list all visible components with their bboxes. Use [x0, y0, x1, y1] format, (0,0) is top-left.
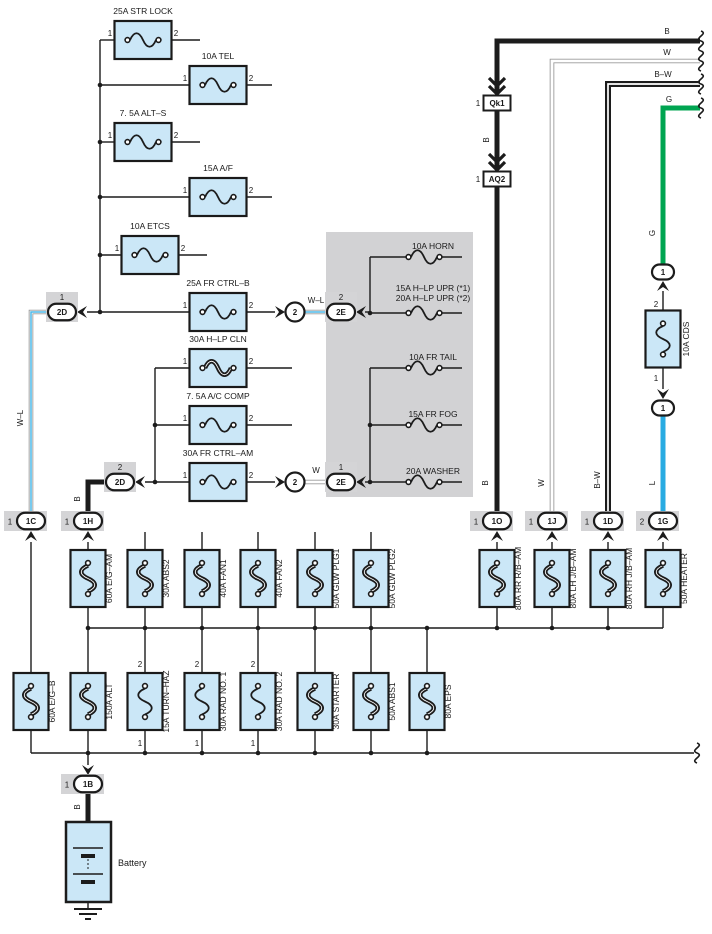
wire-color-label: W–L [308, 296, 325, 305]
pin-number: 1 [108, 29, 113, 38]
connector-2e-2: 22E [325, 292, 357, 322]
fuse-15a-turn-haz: 15A TURN–HAZ21 [128, 660, 172, 748]
connector-code: 2D [57, 308, 67, 317]
fuse-label: 20A H–LP UPR (*2) [396, 293, 471, 303]
fuse-25a-fr-ctrl-b: 25A FR CTRL–B12 [183, 278, 254, 331]
wire-break-icon [695, 743, 700, 763]
fuse-label: 50A GLW PLG1 [331, 548, 341, 608]
connector-code: 1H [83, 517, 93, 526]
junction-dot [256, 626, 261, 631]
fuse-label: 10A TEL [202, 51, 235, 61]
flow-arrow-icon [77, 306, 87, 318]
fuse-30a-rad-no-1: 30A RAD NO. 121 [185, 660, 229, 748]
connector-code: 1B [83, 780, 93, 789]
connector-code: 1 [661, 268, 666, 277]
fuse-40a-fan2: 40A FAN2 [241, 550, 285, 607]
flow-arrow-icon [82, 765, 94, 775]
fuse-10a-tel: 10A TEL12 [183, 51, 254, 104]
connector-1o: 11O [470, 511, 513, 531]
pin-number: 1 [476, 99, 481, 108]
pin-number: 1 [115, 244, 120, 253]
fuse-7-5a-alt-s: 7. 5A ALT–S12 [108, 108, 179, 161]
fuse-label: 150A ALT [104, 683, 114, 719]
pin-number: 1 [183, 301, 188, 310]
fuse-label: 30A RAD NO. 2 [274, 671, 284, 731]
fuse-label: 80A RR R/B–AM [513, 547, 523, 610]
wire-break-icon [699, 31, 704, 51]
pin-number: 1 [65, 781, 70, 790]
fuse-80a-rr-r-b-am: 80A RR R/B–AM [480, 547, 524, 610]
pin-number: 1 [65, 518, 70, 527]
fuse-label: 7. 5A A/C COMP [186, 391, 250, 401]
fuse-80a-lh-j-b-am: 80A LH J/B–AM [535, 548, 579, 608]
connector-1h: 11H [61, 511, 104, 531]
pin-number: 1 [8, 518, 13, 527]
fuse-label: 30A ABS2 [161, 559, 171, 598]
fuse-10a-cds: 10A CDS21 [646, 300, 692, 383]
fuse-label: 7. 5A ALT–S [120, 108, 167, 118]
wire-color-label: B–W [593, 471, 602, 489]
flow-arrow-icon [657, 281, 669, 291]
fuse-label: 60A E/G–AM [104, 554, 114, 603]
junction-dot [86, 626, 91, 631]
battery: Battery [66, 822, 147, 902]
pin-number: 2 [249, 414, 254, 423]
fuse-label: 80A RH J/B–AM [624, 548, 634, 609]
pin-number: 1 [529, 518, 534, 527]
connector-round-0: 2 [286, 303, 305, 322]
connector-code: Qk1 [489, 99, 505, 108]
fuse-label: 60A E/G–B [47, 680, 57, 722]
pin-number: 2 [138, 660, 143, 669]
fuse-label: 30A H–LP CLN [189, 334, 247, 344]
wire-break-icon [699, 98, 704, 118]
wire-color-label: B [482, 137, 491, 142]
connector-code: 2E [336, 478, 346, 487]
pin-number: 2 [249, 186, 254, 195]
flow-arrow-icon [491, 531, 503, 541]
junction-dot [153, 423, 158, 428]
ground-icon [74, 909, 102, 919]
connector-oval-0: 1 [652, 265, 674, 280]
wire-color-label: B [73, 804, 82, 809]
fuse-50a-abs1: 50A ABS1 [354, 673, 398, 730]
fuse-label: 10A CDS [681, 321, 691, 356]
junction-dot [550, 626, 555, 631]
fuse-15a-a-f: 15A A/F12 [183, 163, 254, 216]
flow-arrow-icon [82, 531, 94, 541]
connector-code: AQ2 [489, 175, 506, 184]
fuse-label: 80A LH J/B–AM [568, 548, 578, 608]
wire-color-label: L [648, 480, 657, 485]
flow-arrow-icon [25, 531, 37, 541]
fuse-50a-glw-plg2: 50A GLW PLG2 [354, 548, 398, 608]
wire-breaks [695, 31, 704, 763]
fuse-30a-fr-ctrl-am: 30A FR CTRL–AM12 [183, 448, 254, 501]
fuse-label: 50A HEATER [679, 553, 689, 604]
connector-code: 1G [658, 517, 669, 526]
connector-round-1: 2 [286, 473, 305, 492]
junction-dot [98, 140, 103, 145]
fuse-150a-alt: 150A ALT [71, 673, 115, 730]
fuse-50a-heater: 50A HEATER [646, 550, 690, 607]
pin-number: 2 [174, 29, 179, 38]
junction-dot [368, 423, 373, 428]
fuse-30a-abs2: 30A ABS2 [128, 550, 172, 607]
battery-label: Battery [118, 858, 147, 868]
pin-number: 2 [339, 293, 344, 302]
junction-dot [425, 751, 430, 756]
junction-dot [200, 626, 205, 631]
pin-number: 1 [138, 739, 143, 748]
connector-qk1: Qk11 [476, 96, 511, 111]
gray-panel [326, 232, 473, 497]
junction-dot [98, 253, 103, 258]
connector-1b: 11B [61, 774, 104, 794]
wire-color-label: B [73, 496, 82, 501]
pin-number: 1 [183, 471, 188, 480]
flow-arrow-icon [546, 531, 558, 541]
connector-code: 1C [26, 517, 36, 526]
fuse-label: 15A TURN–HAZ [161, 670, 171, 732]
junction-dot [313, 626, 318, 631]
junction-dot [368, 480, 373, 485]
fuse-25a-str-lock: 25A STR LOCK12 [108, 6, 179, 59]
pin-number: 1 [183, 357, 188, 366]
fuse-label: 80A EPS [443, 684, 453, 718]
flow-arrow-icon [657, 531, 669, 541]
junction-dot [86, 751, 91, 756]
junction-dot [153, 480, 158, 485]
junction-dot [606, 626, 611, 631]
connector-code: 1D [603, 517, 613, 526]
connector-code: 2E [336, 308, 346, 317]
wire-color-label: G [648, 230, 657, 236]
junction-dot [143, 751, 148, 756]
wire-color-label: W [312, 466, 320, 475]
wiring-diagram-page: 25A STR LOCK1210A TEL127. 5A ALT–S1215A … [0, 0, 712, 934]
pin-number: 1 [474, 518, 479, 527]
junction-dot [369, 626, 374, 631]
junction-dot [495, 626, 500, 631]
junction-dot [98, 310, 103, 315]
fuse-30a-h-lp-cln: 30A H–LP CLN12 [183, 334, 254, 387]
pin-number: 2 [249, 301, 254, 310]
fuse-label: 10A FR TAIL [409, 352, 457, 362]
wire-color-label: W [537, 479, 546, 487]
pin-number: 1 [183, 414, 188, 423]
fuse-label: 50A GLW PLG2 [387, 548, 397, 608]
fuse-label: 25A STR LOCK [113, 6, 173, 16]
wire-color-label: B [664, 27, 669, 36]
connector-2d-1: 12D [46, 292, 78, 322]
fuse-label: 30A STARTER [331, 674, 341, 730]
pin-number: 2 [249, 471, 254, 480]
wire-color-label: B–W [654, 70, 672, 79]
junction-dot [200, 751, 205, 756]
flow-arrow-icon [602, 531, 614, 541]
connector-1j: 11J [525, 511, 568, 531]
flow-arrow-icon [275, 476, 285, 488]
connector-code: 2 [293, 478, 298, 487]
connector-code: 1J [548, 517, 557, 526]
connector-code: 1O [492, 517, 503, 526]
fuse-label: 25A FR CTRL–B [186, 278, 250, 288]
junction-dot [143, 626, 148, 631]
pin-number: 2 [174, 131, 179, 140]
flow-arrow-icon [657, 389, 669, 399]
connector-code: 1 [661, 404, 666, 413]
pin-number: 1 [195, 739, 200, 748]
fuse-10a-etcs: 10A ETCS12 [115, 221, 186, 274]
wire-w [552, 61, 700, 513]
wiring-diagram: 25A STR LOCK1210A TEL127. 5A ALT–S1215A … [0, 0, 712, 934]
wire-color-label: W–L [16, 409, 25, 426]
fuse-label: 15A H–LP UPR (*1) [396, 283, 471, 293]
fuse-label: 40A FAN1 [218, 559, 228, 598]
pin-number: 2 [654, 300, 659, 309]
wire-break-icon [699, 74, 704, 94]
connector-aq2: AQ21 [476, 172, 511, 187]
wire-color-label: W [663, 48, 671, 57]
fuse-label: 30A FR CTRL–AM [183, 448, 253, 458]
junction-dot [425, 626, 430, 631]
fuse-7-5a-a-c-comp: 7. 5A A/C COMP12 [183, 391, 254, 444]
fuse-60a-e-g-am: 60A E/G–AM [71, 550, 115, 607]
fuse-label: 50A ABS1 [387, 682, 397, 721]
junction-dot [369, 751, 374, 756]
pin-number: 1 [60, 293, 65, 302]
pin-number: 1 [476, 175, 481, 184]
wire-b-w [608, 84, 700, 513]
fuse-label: 10A HORN [412, 241, 454, 251]
pin-number: 1 [108, 131, 113, 140]
flow-arrow-icon [275, 306, 285, 318]
wire-break-icon [699, 51, 704, 71]
fuse-label: 40A FAN2 [274, 559, 284, 598]
fuse-label: 20A WASHER [406, 466, 460, 476]
fuse-40a-fan1: 40A FAN1 [185, 550, 229, 607]
junction-dot [256, 751, 261, 756]
fuse-label: 30A RAD NO. 1 [218, 671, 228, 731]
pin-number: 1 [339, 463, 344, 472]
junction-dot [98, 195, 103, 200]
connector-1g: 21G [636, 511, 679, 531]
fuse-50a-glw-plg1: 50A GLW PLG1 [298, 548, 342, 608]
junction-dot [368, 311, 373, 316]
fuse-label: 10A ETCS [130, 221, 170, 231]
fuse-30a-starter: 30A STARTER [298, 673, 342, 730]
connector-oval-1: 1 [652, 401, 674, 416]
wire-color-label: G [666, 95, 672, 104]
pin-number: 2 [181, 244, 186, 253]
pin-number: 2 [249, 74, 254, 83]
junction-dot [98, 83, 103, 88]
fuse-label: 15A A/F [203, 163, 233, 173]
connector-2e-1: 12E [325, 462, 357, 492]
fuse-80a-eps: 80A EPS [410, 673, 454, 730]
pin-number: 1 [183, 186, 188, 195]
pin-number: 1 [585, 518, 590, 527]
fuse-60a-e-g-b: 60A E/G–B [14, 673, 58, 730]
pin-number: 2 [640, 518, 645, 527]
pin-number: 1 [251, 739, 256, 748]
junction-dot [313, 751, 318, 756]
connector-1d: 11D [581, 511, 624, 531]
pin-number: 2 [118, 463, 123, 472]
pin-number: 1 [183, 74, 188, 83]
flow-arrow-icon [135, 476, 145, 488]
connector-code: 2D [115, 478, 125, 487]
pin-number: 2 [251, 660, 256, 669]
pin-number: 2 [195, 660, 200, 669]
connector-code: 2 [293, 308, 298, 317]
pin-number: 1 [654, 374, 659, 383]
fuse-80a-rh-j-b-am: 80A RH J/B–AM [591, 548, 635, 609]
pin-number: 2 [249, 357, 254, 366]
wire-g [663, 108, 700, 265]
connector-1c: 11C [4, 511, 47, 531]
wire-color-label: B [481, 480, 490, 485]
connector-2d-2: 22D [104, 462, 136, 492]
fuse-label: 15A FR FOG [408, 409, 457, 419]
fuse-30a-rad-no-2: 30A RAD NO. 221 [241, 660, 285, 748]
